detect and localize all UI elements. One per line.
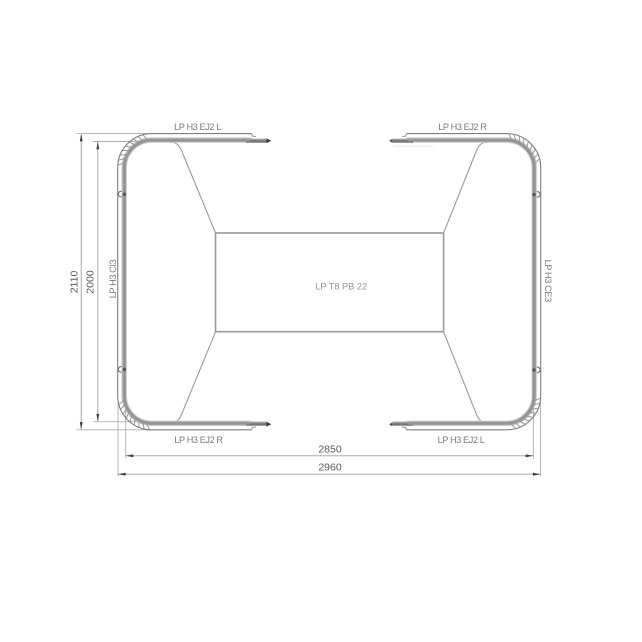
svg-text:2000: 2000 <box>84 270 96 294</box>
svg-text:LP H3 EJ2 R: LP H3 EJ2 R <box>174 435 223 445</box>
svg-text:LP H3 CE3: LP H3 CE3 <box>543 260 553 302</box>
svg-text:LP H3 CI3: LP H3 CI3 <box>108 259 118 298</box>
svg-text:2960: 2960 <box>318 461 342 473</box>
svg-text:LP T8 PB 22: LP T8 PB 22 <box>315 281 367 291</box>
svg-text:2850: 2850 <box>318 444 342 456</box>
svg-text:2110: 2110 <box>68 271 80 294</box>
svg-text:LP H3 EJ2 L: LP H3 EJ2 L <box>438 435 485 445</box>
svg-text:LP H3 EJ2 L: LP H3 EJ2 L <box>174 122 221 132</box>
svg-text:LP H3 EJ2 R: LP H3 EJ2 R <box>438 122 487 132</box>
